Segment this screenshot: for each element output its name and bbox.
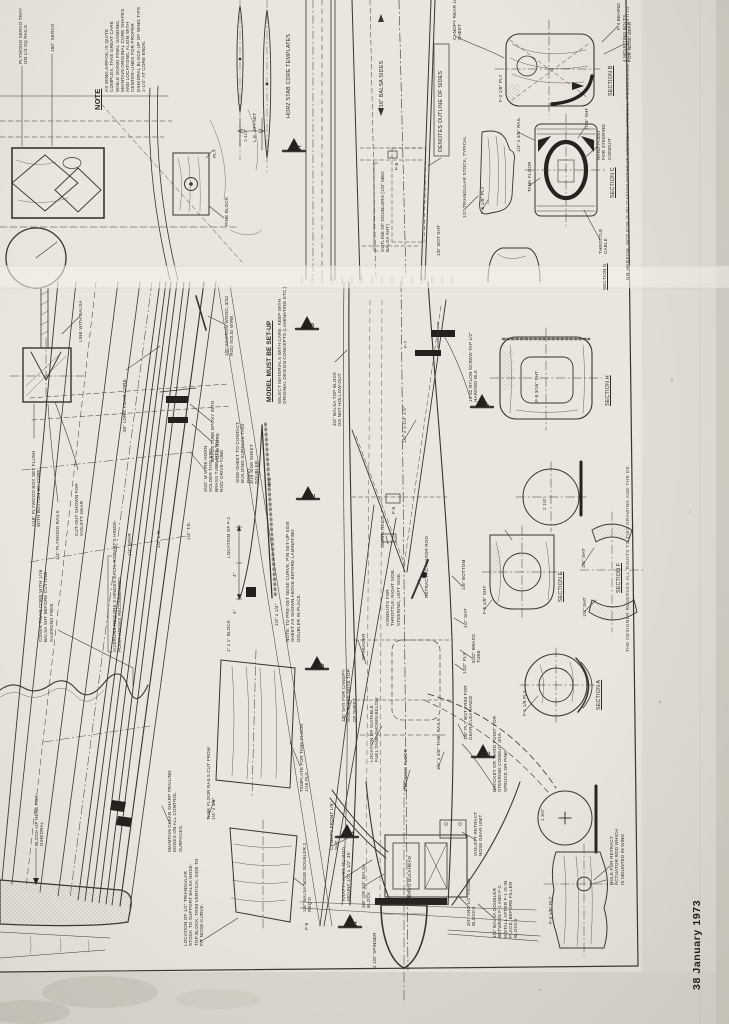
fold-crease [0, 266, 729, 288]
label-qtr-sq: 1/4" x 1/4" [274, 582, 279, 626]
label-foam-core: 30" LONG FOAM CORE [122, 372, 127, 432]
label-triangular-location: LOCATION OF 1/2" TRIANGULAR STOCK TO SUP… [183, 856, 204, 946]
label-brass-532: 5/32" BRASS TUBE [471, 623, 482, 663]
label-dim-1half: 1-1/2" [243, 124, 248, 142]
label-hole-retract: HOLE FOR RETRACT ACTUATOR ROD WHICH IS M… [609, 825, 625, 885]
label-hw-dim: 1/2" x 1-1/4" x 5" [402, 365, 407, 443]
label-tank-location: LOCATION OF SUITABLE FUEL TANK SHOWN BEL… [369, 694, 380, 762]
label-bot-trim: 1/8" PLY BOT TRIM FOR GEAR CLEARANCE [463, 682, 474, 740]
label-tank-rails: 1/4" x 3/8" TANK RAILS [436, 712, 441, 770]
label-preset-note: NOTE: TO PRE-SET NOSE CURVE, PIN SET-UP … [285, 520, 301, 642]
label-section-e: SECTION E [558, 556, 564, 602]
label-f6-ply: F-6 1/8" PLY [480, 174, 485, 214]
label-servo-bulkhead: SERVO BULKHEAD [407, 838, 412, 900]
label-maintain-te: MAINTAIN CLEAN SHARP TRAILING EDGES ON A… [167, 768, 183, 852]
label-canopy-front: CANOPY FRONT 1/8" SHT [329, 792, 340, 850]
label-section-a: SECTION A [596, 664, 602, 710]
label-section-b: SECTION B [608, 50, 614, 96]
label-f8-nose: F-8 [304, 914, 309, 930]
label-outline-doublers: OUTLINE OF DOUBLERS (1/8" MED BALSA SHT) [380, 160, 391, 252]
rights-notice-lower: THE DESIGNER RESERVES ALL RIGHTS TO THIS… [625, 288, 630, 652]
label-section-g: SECTION G [602, 250, 607, 290]
label-side-doubler: 3/16 SIDE SHEET DOUBLER [249, 426, 260, 484]
label-f8-plan: F-8 [394, 154, 399, 170]
label-location-f2: LOCATION OF F-2 [226, 500, 231, 558]
label-balsa-sides: 3/16" BALSA SIDES [379, 32, 385, 112]
label-f8-sht: F-8 3/16" SHT [534, 358, 539, 402]
label-throttle-cable: THROTTLE CABLE [598, 216, 609, 254]
label-rail-qtr: 1/4" x 3/8" RAIL [516, 104, 521, 152]
label-cutout-violett: CUT-OUT SHOWN FOR VIOLETT GEAR [74, 474, 85, 536]
label-template-tank: TEMPLATE FOR TANK FLOOR 1/16 PLY [299, 714, 310, 792]
label-cover-foam: COVER FOAM CORE WITH 1/16 BALSA SHT BEFO… [38, 562, 54, 642]
label-plywood-rails: 1/4" PLYWOOD RAILS [55, 502, 60, 560]
label-triangular-stock: 1/2" TRIANGULAR STOCK, TYPICAL [462, 130, 467, 218]
label-f4-ply: F-4 1/8" PLY [548, 882, 553, 924]
label-block-1x1: 1" x 1" BLOCK [226, 600, 231, 652]
label-f4-behind: F-4 BEHIND [616, 0, 621, 30]
label-bot-sht: 1/8" BOT SHT [436, 210, 441, 256]
label-note-body: AS WING AIRFOIL IS QUITE COMPLEX, TAKE G… [104, 6, 146, 92]
scanned-plan-page: PLYWOOD SERVO TRAY ON 1/4 SQ RAILS 180° … [0, 0, 729, 1024]
page-footer: 38 January 1973 [691, 880, 703, 990]
label-ply: PLY [212, 140, 217, 158]
label-line-balsa: LINE WITH BALSA [78, 300, 83, 342]
label-f-sht-12: 1/2" SHT [582, 585, 587, 617]
label-sht-116: 1/16" SHT [584, 94, 589, 130]
label-section-f: SECTION F [616, 549, 622, 593]
label-bracket-hardpoint: BRACKET OR 'HARD POINT' FOR STEERING CON… [492, 712, 508, 792]
label-filler-blocks: 3/4" AND 1/2" FILLER BLOCKS [466, 872, 477, 926]
label-f-sht-18: 1/8" SHT [581, 536, 586, 568]
label-aileron-wire: 1/8" AILERON WOOD, 3/32 ROD SOLID WIRE [224, 292, 235, 356]
label-blockup-dihedral: BLOCK-UP HERE FOR DIHEDRAL [34, 780, 45, 846]
label-sht-12: 1/2" SHT [463, 596, 468, 628]
arrow-letter-d: D [319, 656, 326, 668]
label-le-offset: L.E. OFFSET [252, 112, 257, 142]
label-le: 1/4" L.E. [156, 514, 161, 548]
label-tank-floor-rails: TANK FLOOR RAILS CUT FROM 1/4" x 3/8" [206, 746, 217, 820]
label-section-h: SECTION H [605, 360, 611, 406]
label-nts: NTS [267, 469, 272, 487]
label-model-heading: MODEL MUST BE SET-UP [266, 284, 273, 402]
label-tank-floor-116: 1/16" TANK FLOOR [403, 734, 408, 792]
label-servo-rails: SERVO RAILS [380, 500, 385, 548]
label-f2-ply: F-2 1/8" PLY [498, 62, 503, 102]
label-servo-tray: PLYWOOD SERVO TRAY ON 1/4 SQ RAILS [18, 6, 29, 64]
label-aileron-hinges: AILERONS REQUIRE 4 HINGES EACH. ROBART'S… [112, 510, 123, 652]
label-nose-doubler: 1/8" BALSA NOSE DOUBLER 2 REQ'D [302, 830, 313, 912]
rights-notice-upper: GN HEREON. NOT FOR DUPLICATION WITHOUT W… [625, 0, 630, 280]
arrow-letter-a: A [352, 914, 359, 926]
label-plywood-box: 1/16" PLYWOOD BOX SET FLUSH WITH BOTTOM … [31, 445, 42, 527]
label-servo-180: 180° SERVO [50, 16, 55, 52]
label-dia-214: 2 1/4" [542, 482, 547, 510]
label-model-body: SELECT MATERIALS WITH CARE. KEEP WITH OR… [277, 284, 288, 404]
label-bottom-18: 1/8" BOTTOM [461, 546, 466, 590]
label-te: 1/4" T.E. [186, 506, 191, 540]
label-kraft-hayes: KRAFT-HAYES NU-ROD MOUNT 1/2" x 1/2" 45° [341, 841, 352, 901]
label-f5-sht: F-5 1/8" SHT [482, 574, 487, 614]
label-horz-stab: HORZ STAB CORE TEMPLATES [286, 26, 292, 118]
label-dim-4a: 4" [232, 563, 237, 577]
label-dia-134: 1 3/4" [540, 793, 545, 821]
label-top-block: 3/4" BALSA TOP BLOCK DO NOT HOLLOW-OUT [332, 364, 343, 426]
label-retract-rod: RETRACT ACTUATOR ROD [424, 536, 429, 598]
arrow-letter-c: C [485, 744, 492, 756]
arrow-letter-b: B [349, 824, 356, 836]
label-canopy-sides: 1/8" SHT FOR CANOPY SIDES. SEE NOTE TOP … [341, 662, 357, 722]
arrow-letter-f: F [484, 394, 491, 406]
label-f1-ply: F-1 1/8 PLY [522, 678, 527, 716]
label-f5: F-5 [391, 498, 396, 514]
label-pine-block: PINE BLOCK [224, 180, 229, 226]
label-ply-132: 1/32" PLY [462, 638, 467, 674]
label-spinner: 2 1/8" SPINNER [372, 906, 377, 968]
arrow-letter-e: E [310, 486, 317, 498]
label-violett-gear: VIOLETT RETRACT NOSE GEAR UNIT [473, 802, 484, 856]
label-note-heading: NOTE [94, 80, 103, 110]
label-spar: 1/4" SPAR [127, 518, 132, 556]
label-f7: F-7 [403, 332, 408, 348]
label-balsa-doubler: 1/8" BALSA DOUBLER BETWEEN F-1 AND F-2. … [492, 870, 518, 938]
label-nose-block: 3/8" OR 3/4" BALSA BLOCK [361, 854, 372, 908]
label-section-c: SECTION C [610, 154, 616, 198]
label-conduits: CONDUITS FOR THROTTLE, RIGHT SIDE. STEER… [385, 568, 401, 626]
label-denotes-outline: DENOTES OUTLINE OF SIDES [438, 46, 444, 152]
label-spreader: SPREADER [361, 618, 366, 660]
label-wire-horn: 3/32" M WIRE HORN SOLDER THIS END. BRASS… [203, 432, 224, 492]
arrow-letter-h: H [296, 138, 303, 150]
arrow-letter-g: G [309, 316, 316, 328]
label-canopy-rear: CANOPY REAR 1/2" SHEET [452, 0, 463, 40]
label-dim-4b: 4" [232, 600, 237, 614]
label-tank-floor: TANK FLOOR [527, 152, 532, 192]
label-nylon-screw: 10-32 NYLON SCREW TAP 1/2" HARDWD BLK [468, 328, 479, 402]
